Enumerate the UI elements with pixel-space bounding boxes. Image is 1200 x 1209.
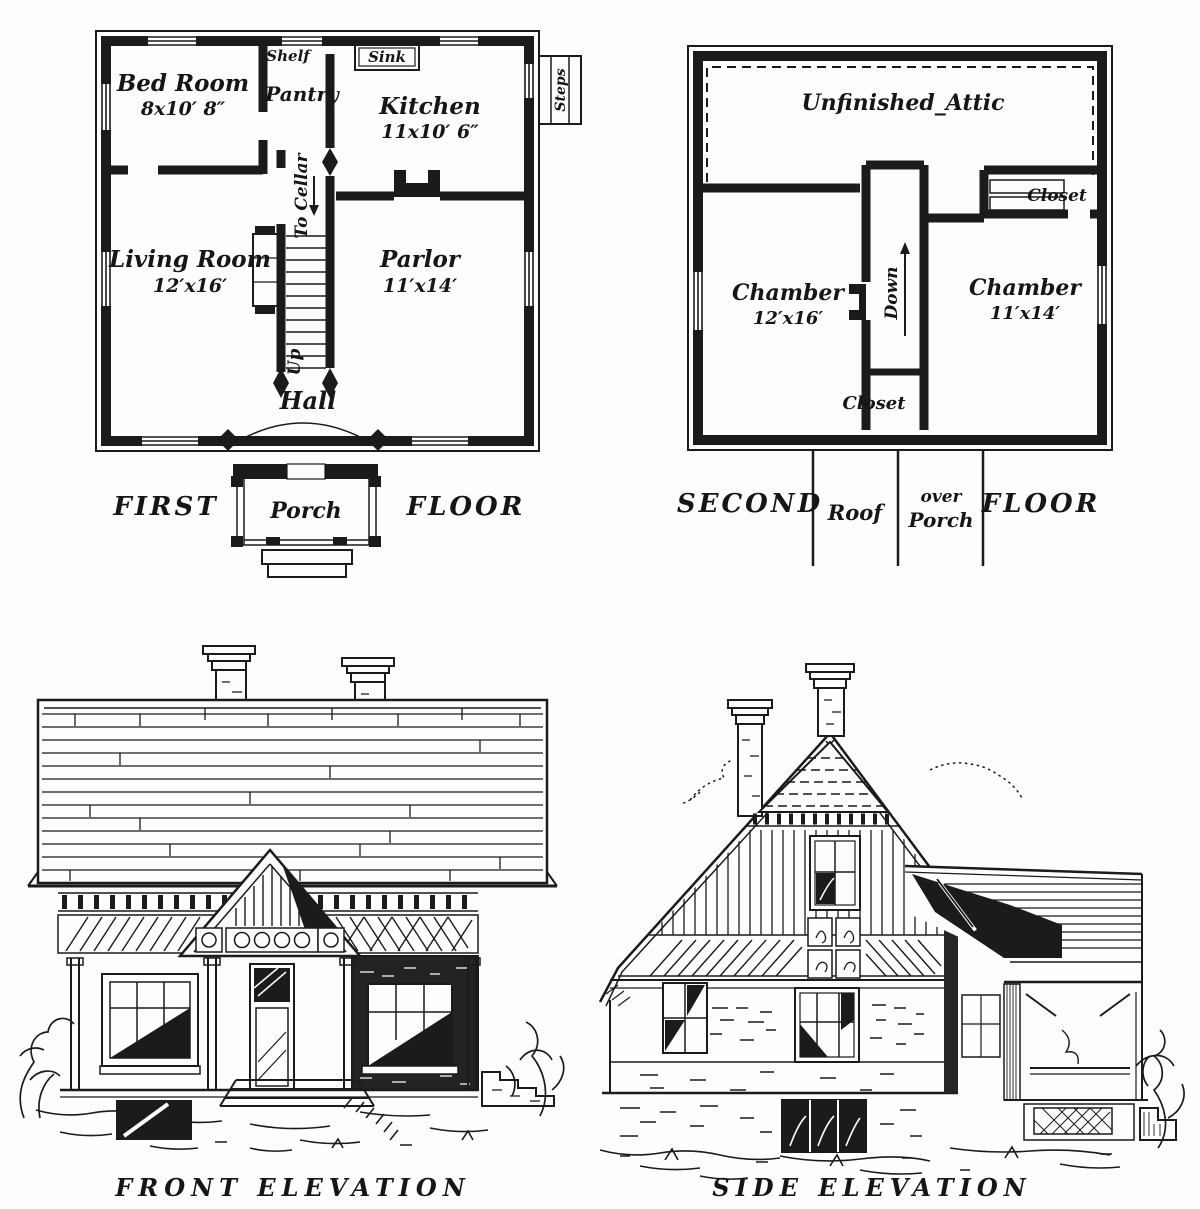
second-floor-labels: Unfinished_Attic Closet Chamber 12′x16′ … (677, 90, 1100, 532)
side-corner-strip (944, 920, 958, 1093)
staircase (286, 236, 326, 368)
chamber-right-size: 11′x14′ (990, 303, 1061, 324)
kitchen-size: 11x10′ 6″ (381, 121, 479, 143)
sink-label: Sink (368, 48, 406, 66)
attic-label: Unfinished_Attic (801, 90, 1005, 116)
house-plans-drawing: Bed Room 8x10′ 8″ Shelf Sink Pantry Kitc… (0, 0, 1200, 1209)
side-small-panes (808, 918, 860, 978)
parlor-size: 11′x14′ (383, 275, 457, 297)
pantry-label: Pantry (264, 82, 340, 106)
living-room-size: 12′x16′ (153, 275, 227, 297)
roof-label: Roof (827, 500, 886, 525)
side-lower-story (610, 980, 944, 1093)
side-chimney-right (806, 664, 854, 736)
front-right-wall (352, 956, 478, 1090)
shelf-label: Shelf (266, 47, 312, 65)
porch-label: Porch (269, 498, 342, 524)
first-caption: FIRST (112, 492, 218, 522)
down-arrow-head (900, 242, 910, 254)
engraving-sheet: Bed Room 8x10′ 8″ Shelf Sink Pantry Kitc… (0, 0, 1200, 1209)
side-diagonal-band (618, 935, 944, 976)
chamber-left-size: 12′x16′ (753, 308, 824, 329)
front-door (250, 964, 294, 1090)
front-elevation-caption: FRONT ELEVATION (114, 1173, 471, 1202)
second-caption: SECOND (677, 489, 823, 519)
front-shrub-left (20, 1018, 74, 1118)
side-elevation-caption: SIDE ELEVATION (712, 1173, 1031, 1202)
over-porch-label: Porch (907, 508, 973, 532)
side-foundation (602, 1093, 958, 1152)
floor-caption-1: FLOOR (406, 492, 526, 522)
side-gable-window (810, 836, 860, 910)
to-cellar-label: To Cellar (292, 152, 312, 238)
front-roof (28, 700, 557, 886)
closet-lower-label: Closet (842, 393, 906, 414)
up-label: Up (285, 349, 305, 376)
side-elevation: SIDE ELEVATION (560, 664, 1184, 1202)
steps-label: Steps (553, 68, 569, 111)
first-floor-plan: Bed Room 8x10′ 8″ Shelf Sink Pantry Kitc… (96, 31, 581, 577)
parlor-label: Parlor (379, 246, 462, 273)
living-room-label: Living Room (108, 246, 271, 273)
front-foundation (60, 1072, 554, 1140)
second-floor-plan: Unfinished_Attic Closet Chamber 12′x16′ … (677, 46, 1112, 566)
bed-room-size: 8x10′ 8″ (140, 98, 226, 120)
front-left-window (100, 974, 200, 1074)
hall-label: Hall (279, 386, 336, 415)
chamber-left-label: Chamber (732, 280, 845, 306)
over-label: over (921, 487, 963, 507)
chamber-right-label: Chamber (969, 275, 1082, 301)
kitchen-label: Kitchen (378, 93, 480, 120)
front-door-swing-arc (244, 423, 362, 438)
down-label: Down (882, 266, 902, 320)
floor-caption-2: FLOOR (981, 489, 1101, 519)
closet-upper-label: Closet (1027, 186, 1087, 206)
side-strip-window (962, 995, 1000, 1057)
front-elevation: FRONT ELEVATION (20, 646, 564, 1202)
first-floor-labels: Bed Room 8x10′ 8″ Shelf Sink Pantry Kitc… (108, 47, 569, 524)
bed-room-label: Bed Room (116, 70, 249, 97)
